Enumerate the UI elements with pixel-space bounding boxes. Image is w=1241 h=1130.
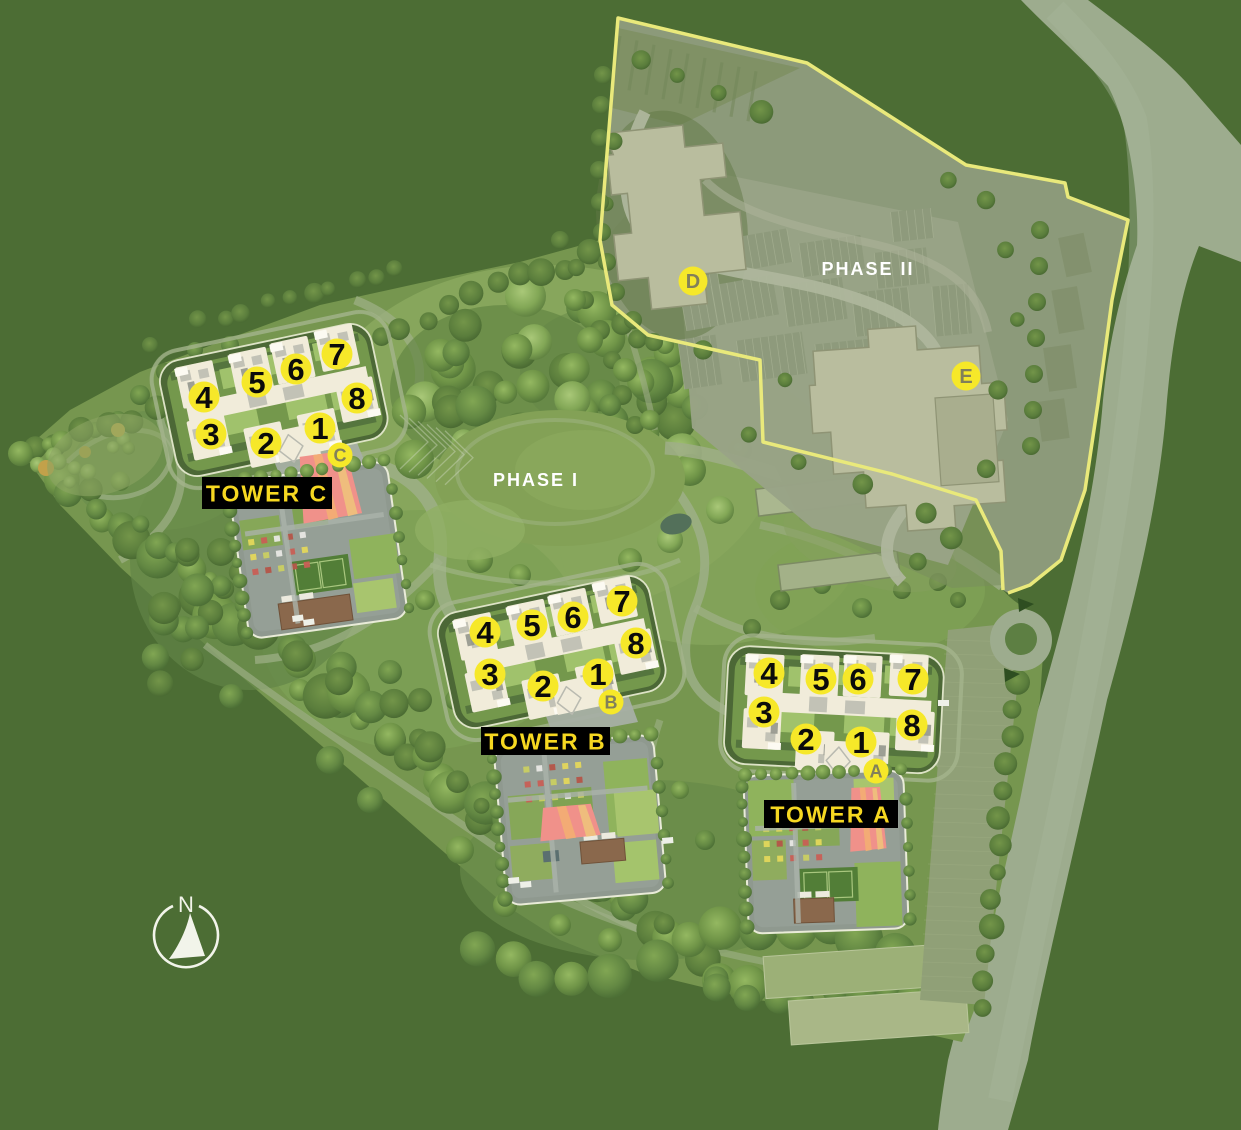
svg-text:7: 7 xyxy=(904,662,921,697)
svg-text:6: 6 xyxy=(849,662,866,697)
svg-text:1: 1 xyxy=(852,725,869,760)
svg-text:6: 6 xyxy=(564,600,581,635)
svg-text:B: B xyxy=(605,692,618,712)
svg-text:4: 4 xyxy=(760,656,778,691)
svg-text:N: N xyxy=(178,892,194,917)
svg-text:6: 6 xyxy=(287,352,304,387)
svg-text:TOWER C: TOWER C xyxy=(206,480,328,506)
svg-text:C: C xyxy=(334,445,347,465)
svg-text:4: 4 xyxy=(476,615,494,650)
svg-text:3: 3 xyxy=(481,657,498,692)
svg-text:8: 8 xyxy=(627,626,644,661)
svg-text:PHASE II: PHASE II xyxy=(821,259,914,279)
svg-text:1: 1 xyxy=(311,411,328,446)
svg-text:4: 4 xyxy=(195,380,213,415)
svg-text:8: 8 xyxy=(903,708,920,743)
svg-text:TOWER A: TOWER A xyxy=(770,801,891,827)
svg-text:TOWER B: TOWER B xyxy=(484,728,606,754)
svg-text:E: E xyxy=(959,366,972,388)
svg-text:2: 2 xyxy=(534,669,551,704)
svg-text:3: 3 xyxy=(202,417,219,452)
svg-text:7: 7 xyxy=(613,584,630,619)
svg-text:5: 5 xyxy=(248,365,265,400)
svg-text:5: 5 xyxy=(523,608,540,643)
svg-text:D: D xyxy=(686,271,700,293)
svg-text:8: 8 xyxy=(348,381,365,416)
svg-text:2: 2 xyxy=(797,722,814,757)
svg-text:5: 5 xyxy=(812,662,829,697)
svg-text:3: 3 xyxy=(755,695,772,730)
svg-text:A: A xyxy=(870,761,883,781)
svg-text:2: 2 xyxy=(257,426,274,461)
svg-text:PHASE I: PHASE I xyxy=(493,470,579,490)
svg-text:1: 1 xyxy=(589,657,606,692)
svg-text:7: 7 xyxy=(328,337,345,372)
